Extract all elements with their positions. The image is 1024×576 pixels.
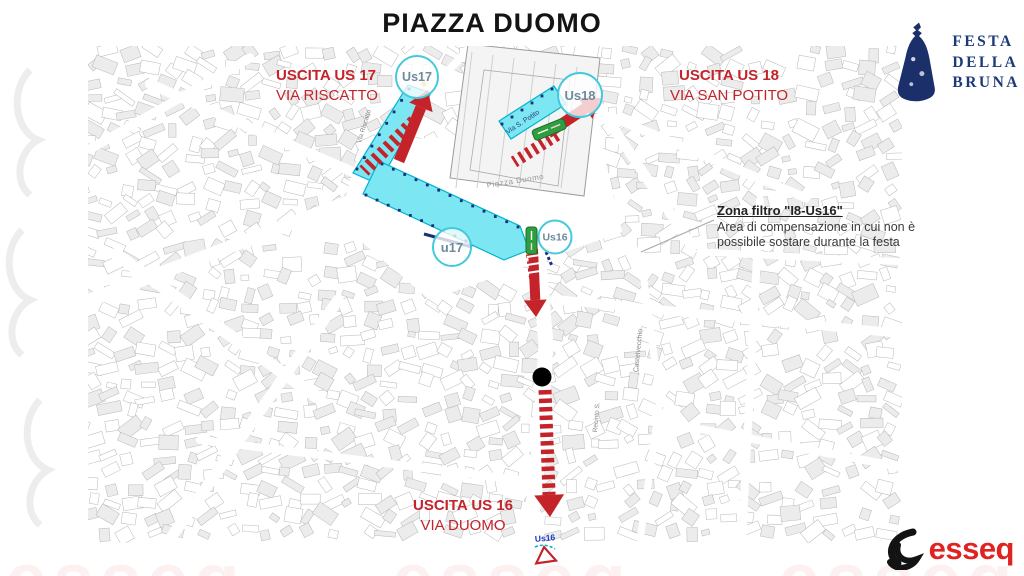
exit-street: VIA DUOMO (393, 516, 533, 536)
brand-wordmark: FESTA DELLA BRUNA (952, 32, 1020, 93)
festa-della-bruna-logo: FESTA DELLA BRUNA (893, 20, 1020, 106)
exit-title: USCITA US 16 (393, 496, 533, 516)
exit-title: USCITA US 17 (276, 66, 378, 86)
map-canvas (0, 0, 1024, 576)
exit-annotation-us16: USCITA US 16 VIA DUOMO (393, 496, 533, 537)
zona-filtro-body: Area di compensazione in cui non è (717, 220, 937, 235)
brand-wordmark-line: DELLA (952, 53, 1020, 73)
watermark-band: esseq esseq esseq (0, 543, 1024, 576)
exit-annotation-us18: USCITA US 18 VIA SAN POTITO (646, 66, 812, 107)
festa-statue-icon (893, 20, 945, 106)
exit-street: VIA SAN POTITO (646, 86, 812, 106)
warning-triangle-icon (531, 543, 559, 565)
zona-filtro-note: Zona filtro "I8-Us16" Area di compensazi… (717, 203, 937, 250)
esseq-swoosh-icon (882, 528, 926, 570)
exit-street: VIA RISCATTO (276, 86, 378, 106)
exit-annotation-us17: USCITA US 17 VIA RISCATTO (276, 66, 378, 107)
brand-wordmark-line: FESTA (952, 32, 1020, 52)
node-badge-us18: Us18 (557, 72, 603, 118)
node-badge-us17: Us17 (395, 55, 439, 99)
page-title: PIAZZA DUOMO (0, 8, 984, 39)
esseq-wordmark: esseq (929, 531, 1014, 567)
exit-marker-us16: Us16 (528, 533, 562, 570)
brand-wordmark-line: BRUNA (952, 73, 1020, 93)
node-badge-u17: u17 (432, 227, 472, 267)
esseq-logo: esseq (882, 528, 1014, 570)
zona-filtro-title: Zona filtro "I8-Us16" (717, 203, 937, 218)
exit-title: USCITA US 18 (646, 66, 812, 86)
slide: PIAZZA DUOMO FESTA DELLA BRUNA USCITA US… (0, 0, 1024, 576)
watermark-text: esseq esseq esseq (6, 543, 1019, 576)
zona-filtro-body: possibile sostare durante la festa (717, 235, 937, 250)
node-badge-us16: Us16 (538, 220, 573, 255)
